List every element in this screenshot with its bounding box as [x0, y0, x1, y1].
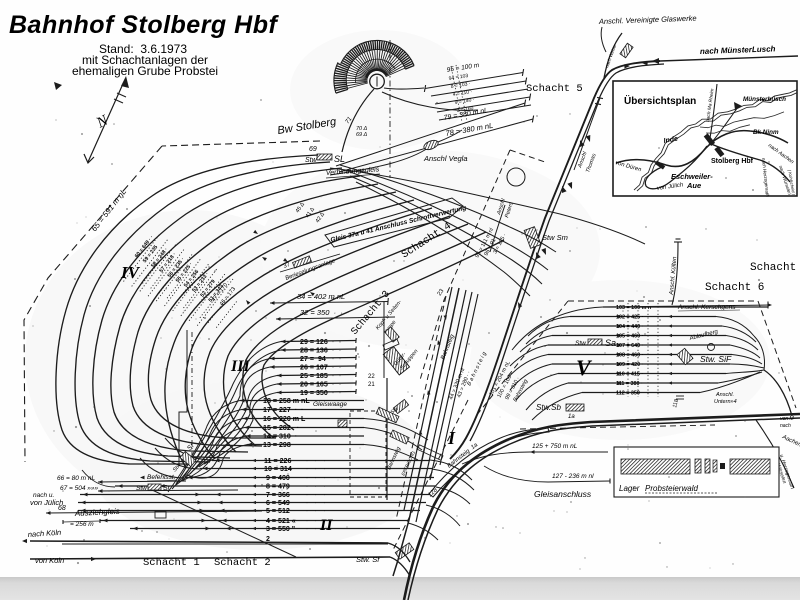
svg-text:· · ·: · · · [306, 467, 325, 473]
svg-text:von M: von M [780, 416, 794, 422]
svg-text:Schacht 2: Schacht 2 [214, 557, 271, 569]
svg-text:111 = 380 ·: 111 = 380 · [616, 381, 643, 387]
svg-text:20 = 165: 20 = 165 [300, 381, 328, 389]
svg-text:I: I [447, 428, 456, 448]
svg-text:109 = 420 ·: 109 = 420 · [616, 362, 644, 368]
svg-text:Schacht 6: Schacht 6 [705, 282, 764, 294]
svg-text:13 = 298: 13 = 298 [263, 441, 291, 449]
svg-text:22: 22 [368, 374, 375, 380]
svg-text:105 = 460 ·: 105 = 460 · [616, 334, 644, 340]
svg-text:ehemaligen Grube Probstei: ehemaligen Grube Probstei [72, 64, 218, 78]
svg-text:11 = 226: 11 = 226 [264, 457, 291, 465]
svg-text:Stw. Sf: Stw. Sf [356, 555, 380, 564]
svg-text:SL: SL [334, 154, 345, 164]
svg-text:104 = 440 ·: 104 = 440 · [616, 324, 644, 330]
svg-text:108 = 460 ·: 108 = 460 · [616, 353, 644, 359]
svg-text:Schacht 1: Schacht 1 [143, 557, 200, 569]
svg-text:Gleiswaage: Gleiswaage [313, 401, 347, 408]
svg-text:69: 69 [309, 146, 317, 153]
svg-text:Bahnhof Stolberg Hbf: Bahnhof Stolberg Hbf [9, 11, 279, 39]
svg-text:Anschl Vegla: Anschl Vegla [423, 154, 468, 163]
svg-text:Übersichtsplan: Übersichtsplan [624, 94, 696, 107]
svg-text:· · ·: · · · [306, 476, 325, 482]
svg-text:Anschl.: Anschl. [715, 392, 734, 398]
svg-text:= 256 m: = 256 m [70, 521, 94, 528]
svg-text:125 + 750 m nL: 125 + 750 m nL [532, 443, 578, 450]
svg-text:26 = 107: 26 = 107 [300, 364, 328, 372]
svg-text:von Köln: von Köln [35, 556, 64, 565]
svg-text:102 = 425 ·: 102 = 425 · [616, 315, 644, 321]
svg-text:17 = 227 · ·: 17 = 227 · · [263, 406, 303, 414]
svg-text:3 = 550 ": 3 = 550 " [264, 525, 295, 533]
svg-text:Stw. SiF: Stw. SiF [700, 354, 732, 364]
svg-text:Untern»4: Untern»4 [714, 399, 737, 405]
svg-text:29 = 126: 29 = 126 [300, 338, 328, 346]
svg-text:II: II [319, 517, 333, 534]
svg-text:Probsteierwald: Probsteierwald [645, 484, 698, 493]
svg-text:21: 21 [368, 382, 375, 388]
svg-text:· · ·: · · · [306, 459, 325, 465]
svg-text:· · ·: · · · [306, 484, 325, 490]
svg-text:69 Δ: 69 Δ [356, 132, 367, 138]
svg-text:Sr: Sr [163, 485, 171, 492]
svg-text:V: V [576, 355, 593, 380]
svg-text:127 - 236 m nl: 127 - 236 m nl [552, 473, 594, 480]
svg-text:34 = 402 m nL: 34 = 402 m nL [297, 292, 345, 301]
svg-text:IV: IV [120, 263, 141, 282]
svg-text:Stolberg Hbf: Stolberg Hbf [711, 158, 754, 165]
svg-text:6 = 549: 6 = 549 [264, 499, 290, 507]
svg-text:Gleisanschluss: Gleisanschluss [534, 489, 592, 499]
svg-text:Schacht 7: Schacht 7 [750, 262, 800, 274]
svg-text:14 = 310 ·: 14 = 310 · [263, 433, 297, 441]
svg-text:Stw: Stw [575, 340, 587, 347]
svg-text:Stw.Sb: Stw.Sb [536, 403, 561, 412]
svg-text:· ·: · · [332, 340, 341, 346]
svg-text:110 = 415 ·: 110 = 415 · [616, 372, 643, 378]
svg-text:107 = 640 ·: 107 = 640 · [616, 343, 644, 349]
svg-text:· ·: · · [332, 348, 341, 354]
svg-text:Sa: Sa [605, 338, 616, 348]
svg-text:· · ·: · · · [306, 509, 325, 515]
svg-text:Münsterbüsch: Münsterbüsch [743, 96, 786, 103]
svg-text:Lager: Lager [619, 484, 640, 493]
svg-text:III: III [230, 358, 250, 375]
svg-text:15 = 282 ·: 15 = 282 · [263, 424, 299, 432]
svg-text:8 = 479: 8 = 479 [264, 483, 290, 491]
svg-text:67 = 504 »»»: 67 = 504 »»» [60, 485, 99, 492]
svg-text:· ·: · · [332, 357, 341, 363]
svg-text:· ·: · · [332, 374, 341, 380]
svg-text:112 = 350: 112 = 350 [616, 391, 640, 397]
svg-text:7 = 366: 7 = 366 [264, 491, 290, 499]
svg-text:· ·: · · [332, 365, 341, 371]
svg-text:4 = 521 «: 4 = 521 « [264, 517, 296, 525]
svg-text:10 = 314: 10 = 314 [264, 465, 292, 473]
svg-text:27 = 94: 27 = 94 [300, 355, 326, 363]
svg-text:5 = 512: 5 = 512 [264, 507, 290, 515]
svg-text:25 = 185: 25 = 185 [300, 372, 328, 380]
svg-text:18 = 258 m nL: 18 = 258 m nL [263, 397, 310, 405]
svg-text:19 = 350: 19 = 350 [300, 389, 328, 397]
svg-text:Schacht 5: Schacht 5 [526, 83, 583, 95]
svg-text:· ·: · · [332, 382, 341, 388]
svg-text:Stw Sm: Stw Sm [542, 233, 568, 242]
svg-text:Bk Ninm: Bk Ninm [753, 129, 779, 136]
svg-text:Eschweiler-: Eschweiler- [671, 172, 713, 181]
svg-text:66 = 80 m nL: 66 = 80 m nL [57, 475, 96, 482]
svg-text:Aue: Aue [686, 181, 701, 190]
svg-text:· · ·: · · · [306, 501, 325, 507]
svg-text:· ·: · · [332, 391, 341, 397]
svg-text:· · ·: · · · [306, 493, 325, 499]
svg-text:28 = 136: 28 = 136 [300, 347, 328, 355]
svg-text:Stw: Stw [136, 485, 148, 492]
svg-text:1a: 1a [568, 414, 575, 420]
svg-text:nach: nach [780, 423, 791, 429]
svg-text:32 = 350 · ·: 32 = 350 · · [300, 308, 343, 317]
svg-text:16 = 220 m L: 16 = 220 m L [263, 415, 306, 423]
svg-text:9 = 400: 9 = 400 [264, 474, 290, 482]
svg-text:68: 68 [58, 505, 66, 512]
